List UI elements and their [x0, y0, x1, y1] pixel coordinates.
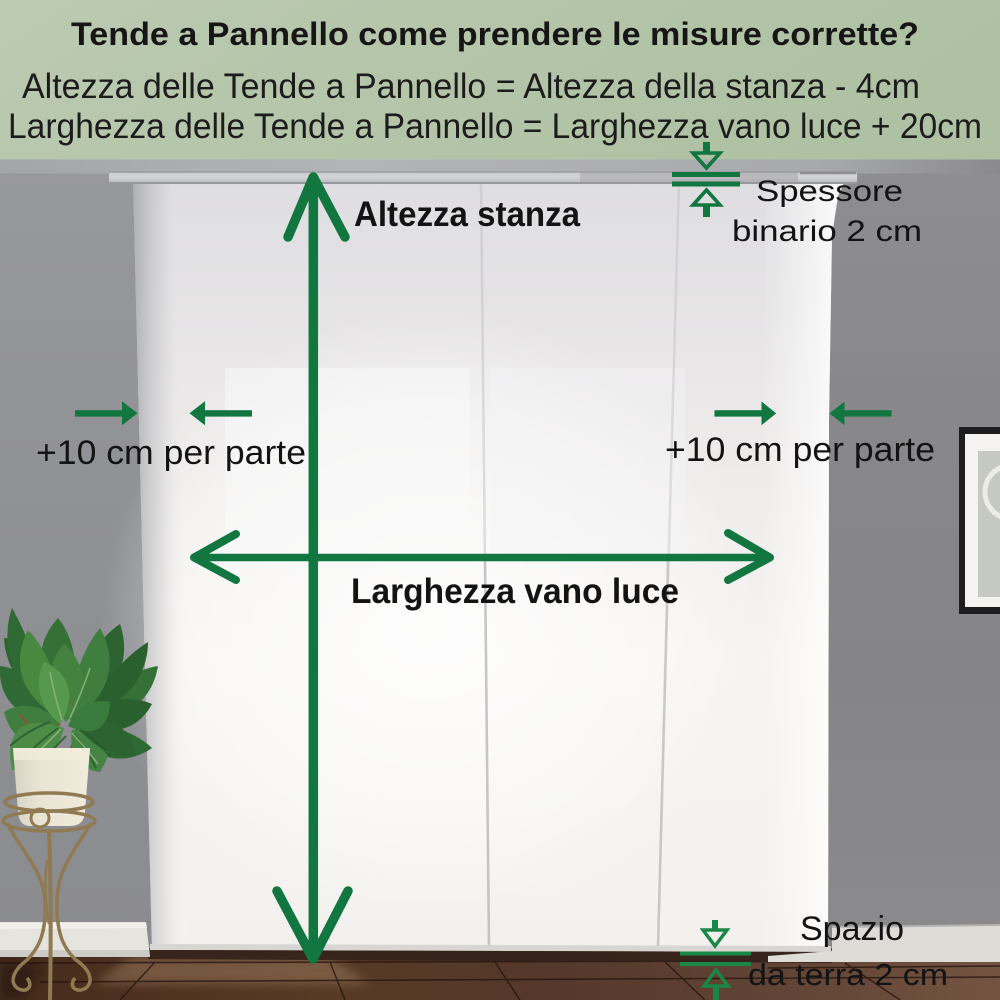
svg-text:Tende a Pannello come prendere: Tende a Pannello come prendere le misure… — [71, 16, 919, 52]
svg-text:Larghezza delle Tende a Pannel: Larghezza delle Tende a Pannello = Largh… — [8, 107, 982, 146]
svg-text:binario 2 cm: binario 2 cm — [732, 215, 922, 248]
svg-text:+10 cm per parte: +10 cm per parte — [36, 434, 306, 472]
svg-text:Spazio: Spazio — [800, 910, 904, 948]
svg-text:Altezza stanza: Altezza stanza — [354, 195, 580, 234]
svg-text:Larghezza vano luce: Larghezza vano luce — [351, 572, 679, 611]
svg-text:Altezza delle Tende a Pannello: Altezza delle Tende a Pannello = Altezza… — [22, 67, 920, 106]
svg-text:+10 cm per parte: +10 cm per parte — [665, 431, 935, 469]
svg-text:da terra 2 cm: da terra 2 cm — [748, 957, 948, 992]
svg-text:Spessore: Spessore — [756, 175, 903, 208]
